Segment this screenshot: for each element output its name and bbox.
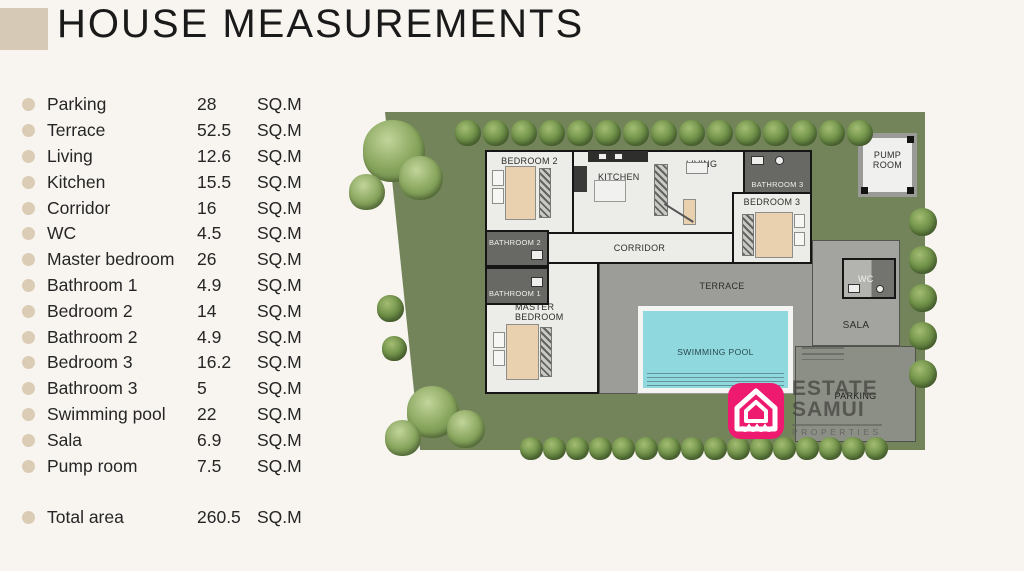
tree-icon <box>763 120 789 146</box>
measurement-row: Pump room7.5SQ.M <box>22 453 302 479</box>
room-wc: WC <box>842 258 896 299</box>
bullet-icon <box>22 434 35 447</box>
tree-icon <box>612 437 635 460</box>
room-bathroom1: BATHROOM 1 <box>485 267 549 305</box>
measurement-value: 4.9 <box>197 327 257 348</box>
total-row: Total area 260.5 SQ.M <box>22 505 302 531</box>
measurement-row: Bedroom 316.2SQ.M <box>22 350 302 376</box>
measurement-value: 12.6 <box>197 146 257 167</box>
measurement-value: 16 <box>197 198 257 219</box>
measurement-label: Master bedroom <box>47 249 197 270</box>
room-kitchen-living: KITCHEN LIVING <box>572 150 745 234</box>
measurement-value: 28 <box>197 94 257 115</box>
tree-icon <box>796 437 819 460</box>
bathroom2-label: BATHROOM 2 <box>489 238 541 247</box>
swimming-pool: SWIMMING POOL <box>638 306 793 393</box>
measurement-label: Bedroom 3 <box>47 352 197 373</box>
measurement-unit: SQ.M <box>257 223 302 244</box>
tree-icon <box>735 120 761 146</box>
terrace-label: TERRACE <box>600 281 844 291</box>
bathroom3-label: BATHROOM 3 <box>745 180 810 189</box>
measurement-label: Living <box>47 146 197 167</box>
measurement-row: Terrace52.5SQ.M <box>22 118 302 144</box>
measurement-row: Corridor16SQ.M <box>22 195 302 221</box>
measurement-unit: SQ.M <box>257 378 302 399</box>
measurement-label: Bathroom 1 <box>47 275 197 296</box>
measurement-label: Pump room <box>47 456 197 477</box>
bullet-icon <box>22 124 35 137</box>
tree-icon <box>623 120 649 146</box>
measurement-unit: SQ.M <box>257 404 302 425</box>
tree-icon <box>909 208 937 236</box>
measurement-row: WC4.5SQ.M <box>22 221 302 247</box>
measurement-unit: SQ.M <box>257 172 302 193</box>
measurement-row: Bathroom 14.9SQ.M <box>22 273 302 299</box>
measurement-unit: SQ.M <box>257 352 302 373</box>
wc-label: WC <box>858 274 874 284</box>
accent-block <box>0 8 48 50</box>
tree-icon <box>909 360 937 388</box>
measurement-unit: SQ.M <box>257 146 302 167</box>
bathroom1-label: BATHROOM 1 <box>489 289 541 298</box>
measurement-value: 4.5 <box>197 223 257 244</box>
bedroom3-label: BEDROOM 3 <box>734 197 810 207</box>
measurement-unit: SQ.M <box>257 430 302 451</box>
pump-room-label-1: PUMP <box>863 150 912 160</box>
measurement-row: Parking28SQ.M <box>22 92 302 118</box>
bullet-icon <box>22 460 35 473</box>
tree-icon <box>382 336 407 361</box>
tree-icon <box>511 120 537 146</box>
measurement-label: Parking <box>47 94 197 115</box>
measurement-label: Bathroom 2 <box>47 327 197 348</box>
measurement-row: Bedroom 214SQ.M <box>22 298 302 324</box>
page-title: HOUSE MEASUREMENTS <box>57 2 584 47</box>
bullet-icon <box>22 408 35 421</box>
tree-icon <box>679 120 705 146</box>
measurement-unit: SQ.M <box>257 198 302 219</box>
room-bedroom3: BEDROOM 3 <box>732 192 812 264</box>
house-logo-icon <box>728 383 784 439</box>
bullet-icon <box>22 150 35 163</box>
tree-icon <box>909 284 937 312</box>
room-bedroom2: BEDROOM 2 <box>485 150 574 234</box>
room-bathroom3: BATHROOM 3 <box>743 150 812 194</box>
measurement-value: 15.5 <box>197 172 257 193</box>
bullet-icon <box>22 98 35 111</box>
bullet-icon <box>22 331 35 344</box>
tree-icon <box>483 120 509 146</box>
measurement-label: Terrace <box>47 120 197 141</box>
tree-icon <box>658 437 681 460</box>
floor-plan: TERRACE SALA PARKING PUMP ROOM MASTER BE… <box>355 90 940 470</box>
tree-icon <box>681 437 704 460</box>
measurement-row: Living12.6SQ.M <box>22 144 302 170</box>
tree-icon <box>704 437 727 460</box>
room-bathroom2: BATHROOM 2 <box>485 230 549 267</box>
measurement-label: Sala <box>47 430 197 451</box>
tree-icon <box>847 120 873 146</box>
tree-icon <box>377 295 404 322</box>
measurement-unit: SQ.M <box>257 94 302 115</box>
tree-icon <box>635 437 658 460</box>
tree-icon <box>842 437 865 460</box>
total-value: 260.5 <box>197 507 257 528</box>
tree-icon <box>791 120 817 146</box>
watermark-properties: PROPERTIES <box>792 424 882 437</box>
tree-icon <box>520 437 543 460</box>
measurement-unit: SQ.M <box>257 249 302 270</box>
corridor-label: CORRIDOR <box>547 243 732 253</box>
measurement-value: 14 <box>197 301 257 322</box>
tree-icon <box>909 246 937 274</box>
room-corridor: CORRIDOR <box>545 232 734 264</box>
tree-icon <box>727 437 750 460</box>
tree-icon <box>385 420 421 456</box>
measurement-rows: Parking28SQ.MTerrace52.5SQ.MLiving12.6SQ… <box>22 92 302 479</box>
total-label: Total area <box>47 507 197 528</box>
estate-samui-logo <box>728 383 784 439</box>
tree-icon <box>750 437 773 460</box>
tree-icon <box>773 437 796 460</box>
tree-icon <box>589 437 612 460</box>
master-bedroom-label-2: BEDROOM <box>515 312 564 322</box>
measurement-label: WC <box>47 223 197 244</box>
tree-icon <box>865 437 888 460</box>
watermark-samui: SAMUI <box>792 399 882 420</box>
measurement-value: 4.9 <box>197 275 257 296</box>
measurement-value: 7.5 <box>197 456 257 477</box>
sala-label: SALA <box>813 320 899 331</box>
measurement-value: 52.5 <box>197 120 257 141</box>
measurement-unit: SQ.M <box>257 275 302 296</box>
measurement-label: Bathroom 3 <box>47 378 197 399</box>
measurement-list: Parking28SQ.MTerrace52.5SQ.MLiving12.6SQ… <box>22 92 302 531</box>
terrace-steps <box>802 347 844 360</box>
bullet-icon <box>22 176 35 189</box>
bullet-icon <box>22 511 35 524</box>
tree-icon <box>819 120 845 146</box>
swimming-pool-label: SWIMMING POOL <box>643 347 788 357</box>
measurement-row: Sala6.9SQ.M <box>22 427 302 453</box>
measurement-row: Swimming pool22SQ.M <box>22 402 302 428</box>
measurement-row: Master bedroom26SQ.M <box>22 247 302 273</box>
pump-room-label-2: ROOM <box>863 160 912 170</box>
tree-icon <box>399 156 443 200</box>
tree-icon <box>909 322 937 350</box>
measurement-value: 16.2 <box>197 352 257 373</box>
tree-icon <box>651 120 677 146</box>
measurement-label: Kitchen <box>47 172 197 193</box>
measurement-unit: SQ.M <box>257 456 302 477</box>
measurement-value: 22 <box>197 404 257 425</box>
bullet-icon <box>22 279 35 292</box>
measurement-row: Bathroom 24.9SQ.M <box>22 324 302 350</box>
measurement-unit: SQ.M <box>257 120 302 141</box>
bullet-icon <box>22 202 35 215</box>
tree-icon <box>539 120 565 146</box>
measurement-row: Kitchen15.5SQ.M <box>22 169 302 195</box>
measurement-label: Corridor <box>47 198 197 219</box>
bedroom2-label: BEDROOM 2 <box>487 156 572 166</box>
bullet-icon <box>22 227 35 240</box>
bullet-icon <box>22 305 35 318</box>
tree-icon <box>707 120 733 146</box>
bullet-icon <box>22 253 35 266</box>
watermark: ESTATE SAMUI PROPERTIES <box>792 378 882 436</box>
tree-icon <box>543 437 566 460</box>
total-unit: SQ.M <box>257 507 302 528</box>
measurement-value: 5 <box>197 378 257 399</box>
bullet-icon <box>22 356 35 369</box>
tree-icon <box>566 437 589 460</box>
tree-icon <box>567 120 593 146</box>
tree-icon <box>455 120 481 146</box>
bullet-icon <box>22 382 35 395</box>
measurement-label: Swimming pool <box>47 404 197 425</box>
tree-icon <box>447 410 485 448</box>
measurement-label: Bedroom 2 <box>47 301 197 322</box>
measurement-unit: SQ.M <box>257 327 302 348</box>
tree-icon <box>349 174 385 210</box>
tree-icon <box>595 120 621 146</box>
measurement-row: Bathroom 35SQ.M <box>22 376 302 402</box>
measurement-value: 6.9 <box>197 430 257 451</box>
tree-icon <box>819 437 842 460</box>
measurement-value: 26 <box>197 249 257 270</box>
measurement-unit: SQ.M <box>257 301 302 322</box>
watermark-estate: ESTATE <box>792 378 882 399</box>
